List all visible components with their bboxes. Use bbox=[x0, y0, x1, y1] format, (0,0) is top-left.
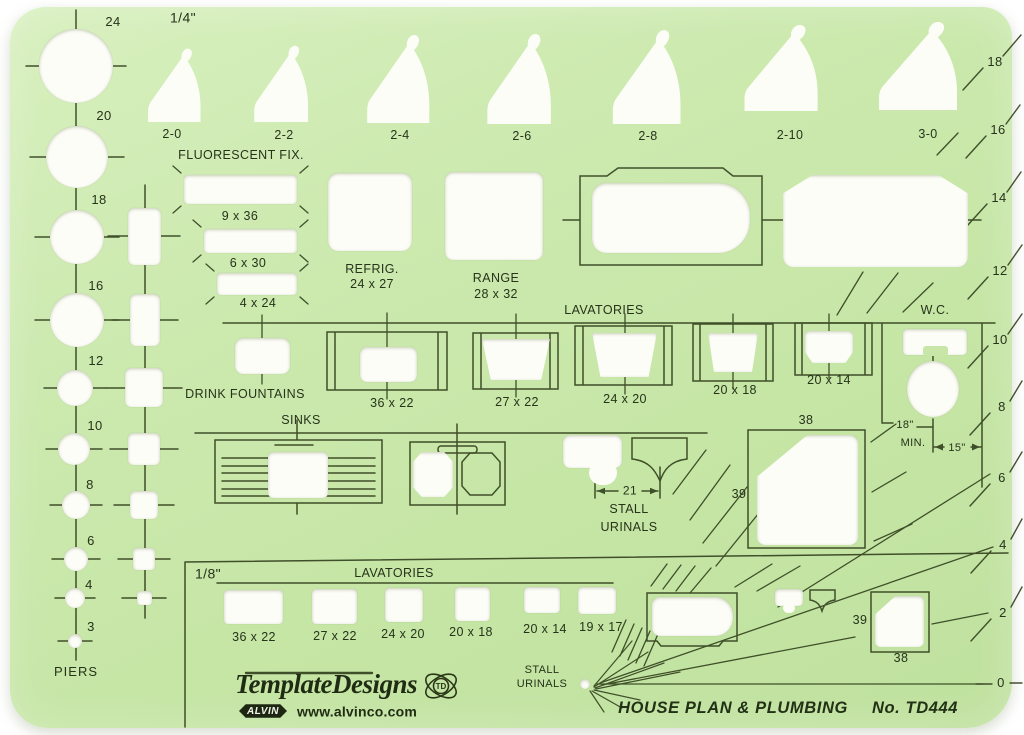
column-square-cutout bbox=[130, 491, 158, 519]
pier-size-label: 20 bbox=[96, 109, 111, 123]
right-scale-label: 0 bbox=[997, 676, 1005, 690]
lavatory-eighth-cutout bbox=[224, 590, 283, 624]
td-atom-logo: TD bbox=[421, 666, 461, 706]
sink-bowl-cutout bbox=[413, 452, 453, 497]
fluorescent-size-label: 6 x 30 bbox=[230, 257, 266, 271]
lavatory-size-label: 27 x 22 bbox=[495, 396, 539, 410]
lavatory-eighth-cutout bbox=[312, 589, 357, 624]
door-size-label: 3-0 bbox=[918, 128, 937, 142]
bathtub-eighth-cutout bbox=[652, 597, 733, 636]
sink-drainboard-cutout bbox=[268, 452, 328, 498]
pier-size-label: 3 bbox=[87, 620, 95, 634]
range-size: 28 x 32 bbox=[474, 288, 518, 302]
lavatory-eighth-size: 36 x 22 bbox=[232, 631, 276, 645]
bathtub-topright-cutout bbox=[783, 175, 968, 267]
lavatory-cutout bbox=[708, 333, 758, 372]
right-scale-label: 4 bbox=[999, 538, 1007, 552]
piers-title: PIERS bbox=[54, 665, 98, 679]
stall-urinals-label-1: STALL bbox=[609, 503, 648, 517]
right-scale-label: 2 bbox=[999, 606, 1007, 620]
brand-logo-text: TemplateDesigns bbox=[235, 670, 417, 700]
lavatory-eighth-size: 27 x 22 bbox=[313, 630, 357, 644]
right-scale-label: 6 bbox=[998, 471, 1006, 485]
right-scale-label: 14 bbox=[991, 191, 1006, 205]
range-label: RANGE bbox=[473, 272, 519, 286]
scale-eighth-label: 1/8" bbox=[195, 566, 221, 581]
fluorescent-size-label: 4 x 24 bbox=[240, 297, 276, 311]
door-swing-cutout bbox=[613, 30, 681, 124]
product-title: HOUSE PLAN & PLUMBING bbox=[618, 699, 848, 717]
pier-size-label: 24 bbox=[105, 15, 120, 29]
fluorescent-size-label: 9 x 36 bbox=[222, 210, 258, 224]
pier-circle-cutout bbox=[62, 491, 90, 519]
sinks-title: SINKS bbox=[281, 414, 321, 428]
door-size-label: 2-10 bbox=[777, 129, 804, 143]
scale-quarter-label: 1/4" bbox=[170, 10, 196, 25]
right-scale-label: 18 bbox=[987, 55, 1002, 69]
alvin-logo: ALVIN bbox=[239, 703, 287, 719]
refrigerator-label: REFRIG. bbox=[345, 263, 399, 277]
website-label: www.alvinco.com bbox=[297, 704, 417, 719]
pier-circle-cutout bbox=[50, 210, 104, 264]
right-scale-label: 16 bbox=[990, 123, 1005, 137]
door-size-label: 2-0 bbox=[162, 128, 181, 142]
lavatory-eighth-cutout bbox=[455, 587, 490, 621]
wc-dim-18: 18" bbox=[896, 419, 913, 431]
pier-size-label: 18 bbox=[91, 193, 106, 207]
lavatory-size-label: 24 x 20 bbox=[603, 393, 647, 407]
shower-38-label: 38 bbox=[799, 414, 814, 428]
double-sink-right-bowl bbox=[462, 453, 500, 495]
column-square-cutout bbox=[128, 208, 161, 265]
column-square-cutout bbox=[125, 368, 163, 407]
refrigerator-cutout bbox=[328, 173, 412, 251]
door-size-label: 2-4 bbox=[390, 129, 409, 143]
td-mark: TD bbox=[436, 682, 447, 691]
urinal-eighth-cutout-tab bbox=[783, 603, 795, 613]
pier-circle-cutout bbox=[57, 370, 93, 406]
drink-fountain-cutout bbox=[235, 338, 290, 374]
door-swing-cutout bbox=[744, 25, 817, 111]
pier-circle-cutout bbox=[50, 293, 104, 347]
range-cutout bbox=[445, 172, 543, 260]
pier-size-label: 10 bbox=[87, 419, 102, 433]
pier-circle-cutout bbox=[58, 433, 90, 465]
wc-dim-15: 15" bbox=[948, 442, 965, 454]
drink-fountains-label: DRINK FOUNTAINS bbox=[185, 388, 305, 402]
column-square-cutout bbox=[137, 591, 152, 605]
lavatory-cutout bbox=[482, 339, 550, 380]
lavatory-eighth-size: 20 x 14 bbox=[523, 623, 567, 637]
right-scale-label: 8 bbox=[998, 400, 1006, 414]
num-39-eighth: 39 bbox=[853, 614, 868, 628]
alvin-logo-text: ALVIN bbox=[247, 706, 279, 717]
door-swing-cutout bbox=[487, 34, 550, 124]
door-size-label: 2-6 bbox=[512, 130, 531, 144]
right-scale-label: 12 bbox=[992, 264, 1007, 278]
pier-circle-cutout bbox=[65, 588, 85, 608]
wc-bowl-cutout bbox=[907, 361, 959, 417]
lavatory-size-label: 20 x 14 bbox=[807, 374, 851, 388]
stall-urinal-cutout-tab bbox=[589, 462, 617, 485]
lavatory-size-label: 36 x 22 bbox=[370, 397, 414, 411]
door-swing-cutouts bbox=[148, 22, 957, 124]
fluorescent-title: FLUORESCENT FIX. bbox=[178, 149, 304, 163]
door-swing-cutout bbox=[254, 46, 308, 122]
urinal-eighth-outline bbox=[810, 590, 835, 611]
door-swing-cutout bbox=[367, 35, 429, 123]
lavatories-eighth-title: LAVATORIES bbox=[354, 567, 434, 581]
lavatory-eighth-cutout bbox=[524, 587, 560, 613]
fluorescent-cutout bbox=[217, 273, 297, 295]
column-square-cutout bbox=[130, 294, 160, 346]
product-model: No. TD444 bbox=[872, 699, 958, 717]
lavatory-size-label: 20 x 18 bbox=[713, 384, 757, 398]
fluorescent-cutout bbox=[204, 229, 297, 253]
column-square-cutout bbox=[128, 433, 160, 465]
lavatory-eighth-size: 20 x 18 bbox=[449, 626, 493, 640]
lavatory-eighth-cutout bbox=[578, 587, 616, 614]
lavatory-eighth-size: 19 x 17 bbox=[579, 621, 623, 635]
bathtub-quarter-cutout bbox=[592, 183, 750, 253]
door-size-label: 2-2 bbox=[274, 129, 293, 143]
right-scale-label: 10 bbox=[992, 333, 1007, 347]
door-swing-cutout bbox=[879, 22, 957, 110]
stall-urinals-label-2: URINALS bbox=[601, 521, 658, 535]
pier-circle-cutout bbox=[64, 547, 88, 571]
door-swing-cutout bbox=[148, 49, 200, 122]
lavatory-cutout bbox=[805, 331, 853, 363]
pier-size-label: 8 bbox=[86, 478, 94, 492]
pier-size-label: 16 bbox=[88, 279, 103, 293]
registration-dot bbox=[580, 679, 590, 689]
wc-dim-min: MIN. bbox=[901, 437, 926, 449]
pier-size-label: 4 bbox=[85, 578, 93, 592]
fluorescent-cutout bbox=[184, 175, 297, 204]
pier-circle-cutout bbox=[46, 126, 108, 188]
shower-38-eighth: 38 bbox=[894, 652, 909, 666]
column-square-cutout bbox=[133, 548, 155, 570]
lavatory-eighth-cutout bbox=[385, 588, 423, 622]
wc-tank-notch bbox=[923, 346, 948, 356]
pier-size-label: 6 bbox=[87, 534, 95, 548]
pier-circle-cutout bbox=[39, 29, 113, 103]
pier-circle-cutout bbox=[68, 634, 82, 648]
pier-size-label: 12 bbox=[88, 354, 103, 368]
stall-urinals-eighth-1: STALL bbox=[525, 664, 560, 676]
stall-urinals-eighth-2: URINALS bbox=[517, 678, 567, 690]
lavatory-cutout bbox=[592, 333, 657, 377]
refrigerator-size: 24 x 27 bbox=[350, 278, 394, 292]
num-39-label: 39 bbox=[732, 488, 747, 502]
door-size-label: 2-8 bbox=[638, 130, 657, 144]
template-photo: 1/4" 24 20 18 16 12 10 8 6 4 3 PIERS 2-0… bbox=[0, 0, 1024, 735]
urinal-dim-21: 21 bbox=[623, 484, 637, 497]
lavatory-cutout bbox=[360, 347, 417, 382]
wc-label: W.C. bbox=[921, 304, 950, 318]
lavatories-title: LAVATORIES bbox=[564, 304, 644, 318]
lavatory-eighth-size: 24 x 20 bbox=[381, 628, 425, 642]
